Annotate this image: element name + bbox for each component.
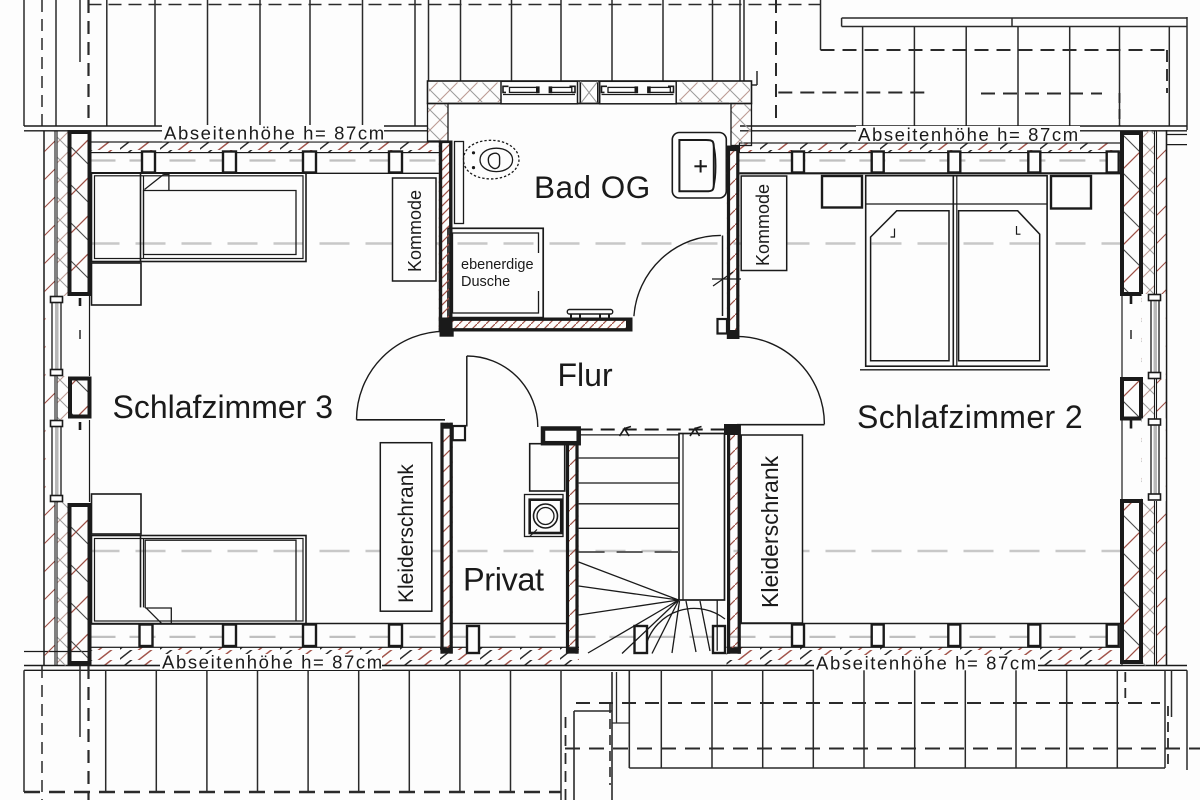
svg-text:ebenerdige: ebenerdige bbox=[461, 257, 534, 273]
svg-text:Kommode: Kommode bbox=[753, 184, 773, 266]
svg-text:Kleiderschrank: Kleiderschrank bbox=[395, 464, 418, 603]
svg-text:Privat: Privat bbox=[463, 562, 544, 598]
svg-text:Abseitenhöhe h= 87cm: Abseitenhöhe h= 87cm bbox=[164, 123, 386, 144]
svg-text:Abseitenhöhe h= 87cm: Abseitenhöhe h= 87cm bbox=[816, 653, 1038, 674]
svg-text:Abseitenhöhe h= 87cm: Abseitenhöhe h= 87cm bbox=[858, 124, 1080, 145]
svg-text:Bad OG: Bad OG bbox=[534, 169, 651, 205]
svg-text:Abseitenhöhe h= 87cm: Abseitenhöhe h= 87cm bbox=[162, 652, 384, 673]
svg-text:Flur: Flur bbox=[558, 357, 613, 393]
svg-text:Schlafzimmer 3: Schlafzimmer 3 bbox=[113, 389, 334, 425]
svg-text:Kleiderschrank: Kleiderschrank bbox=[757, 455, 783, 608]
svg-text:Dusche: Dusche bbox=[461, 274, 510, 290]
svg-text:Kommode: Kommode bbox=[405, 190, 425, 272]
svg-text:Schlafzimmer 2: Schlafzimmer 2 bbox=[857, 399, 1083, 435]
